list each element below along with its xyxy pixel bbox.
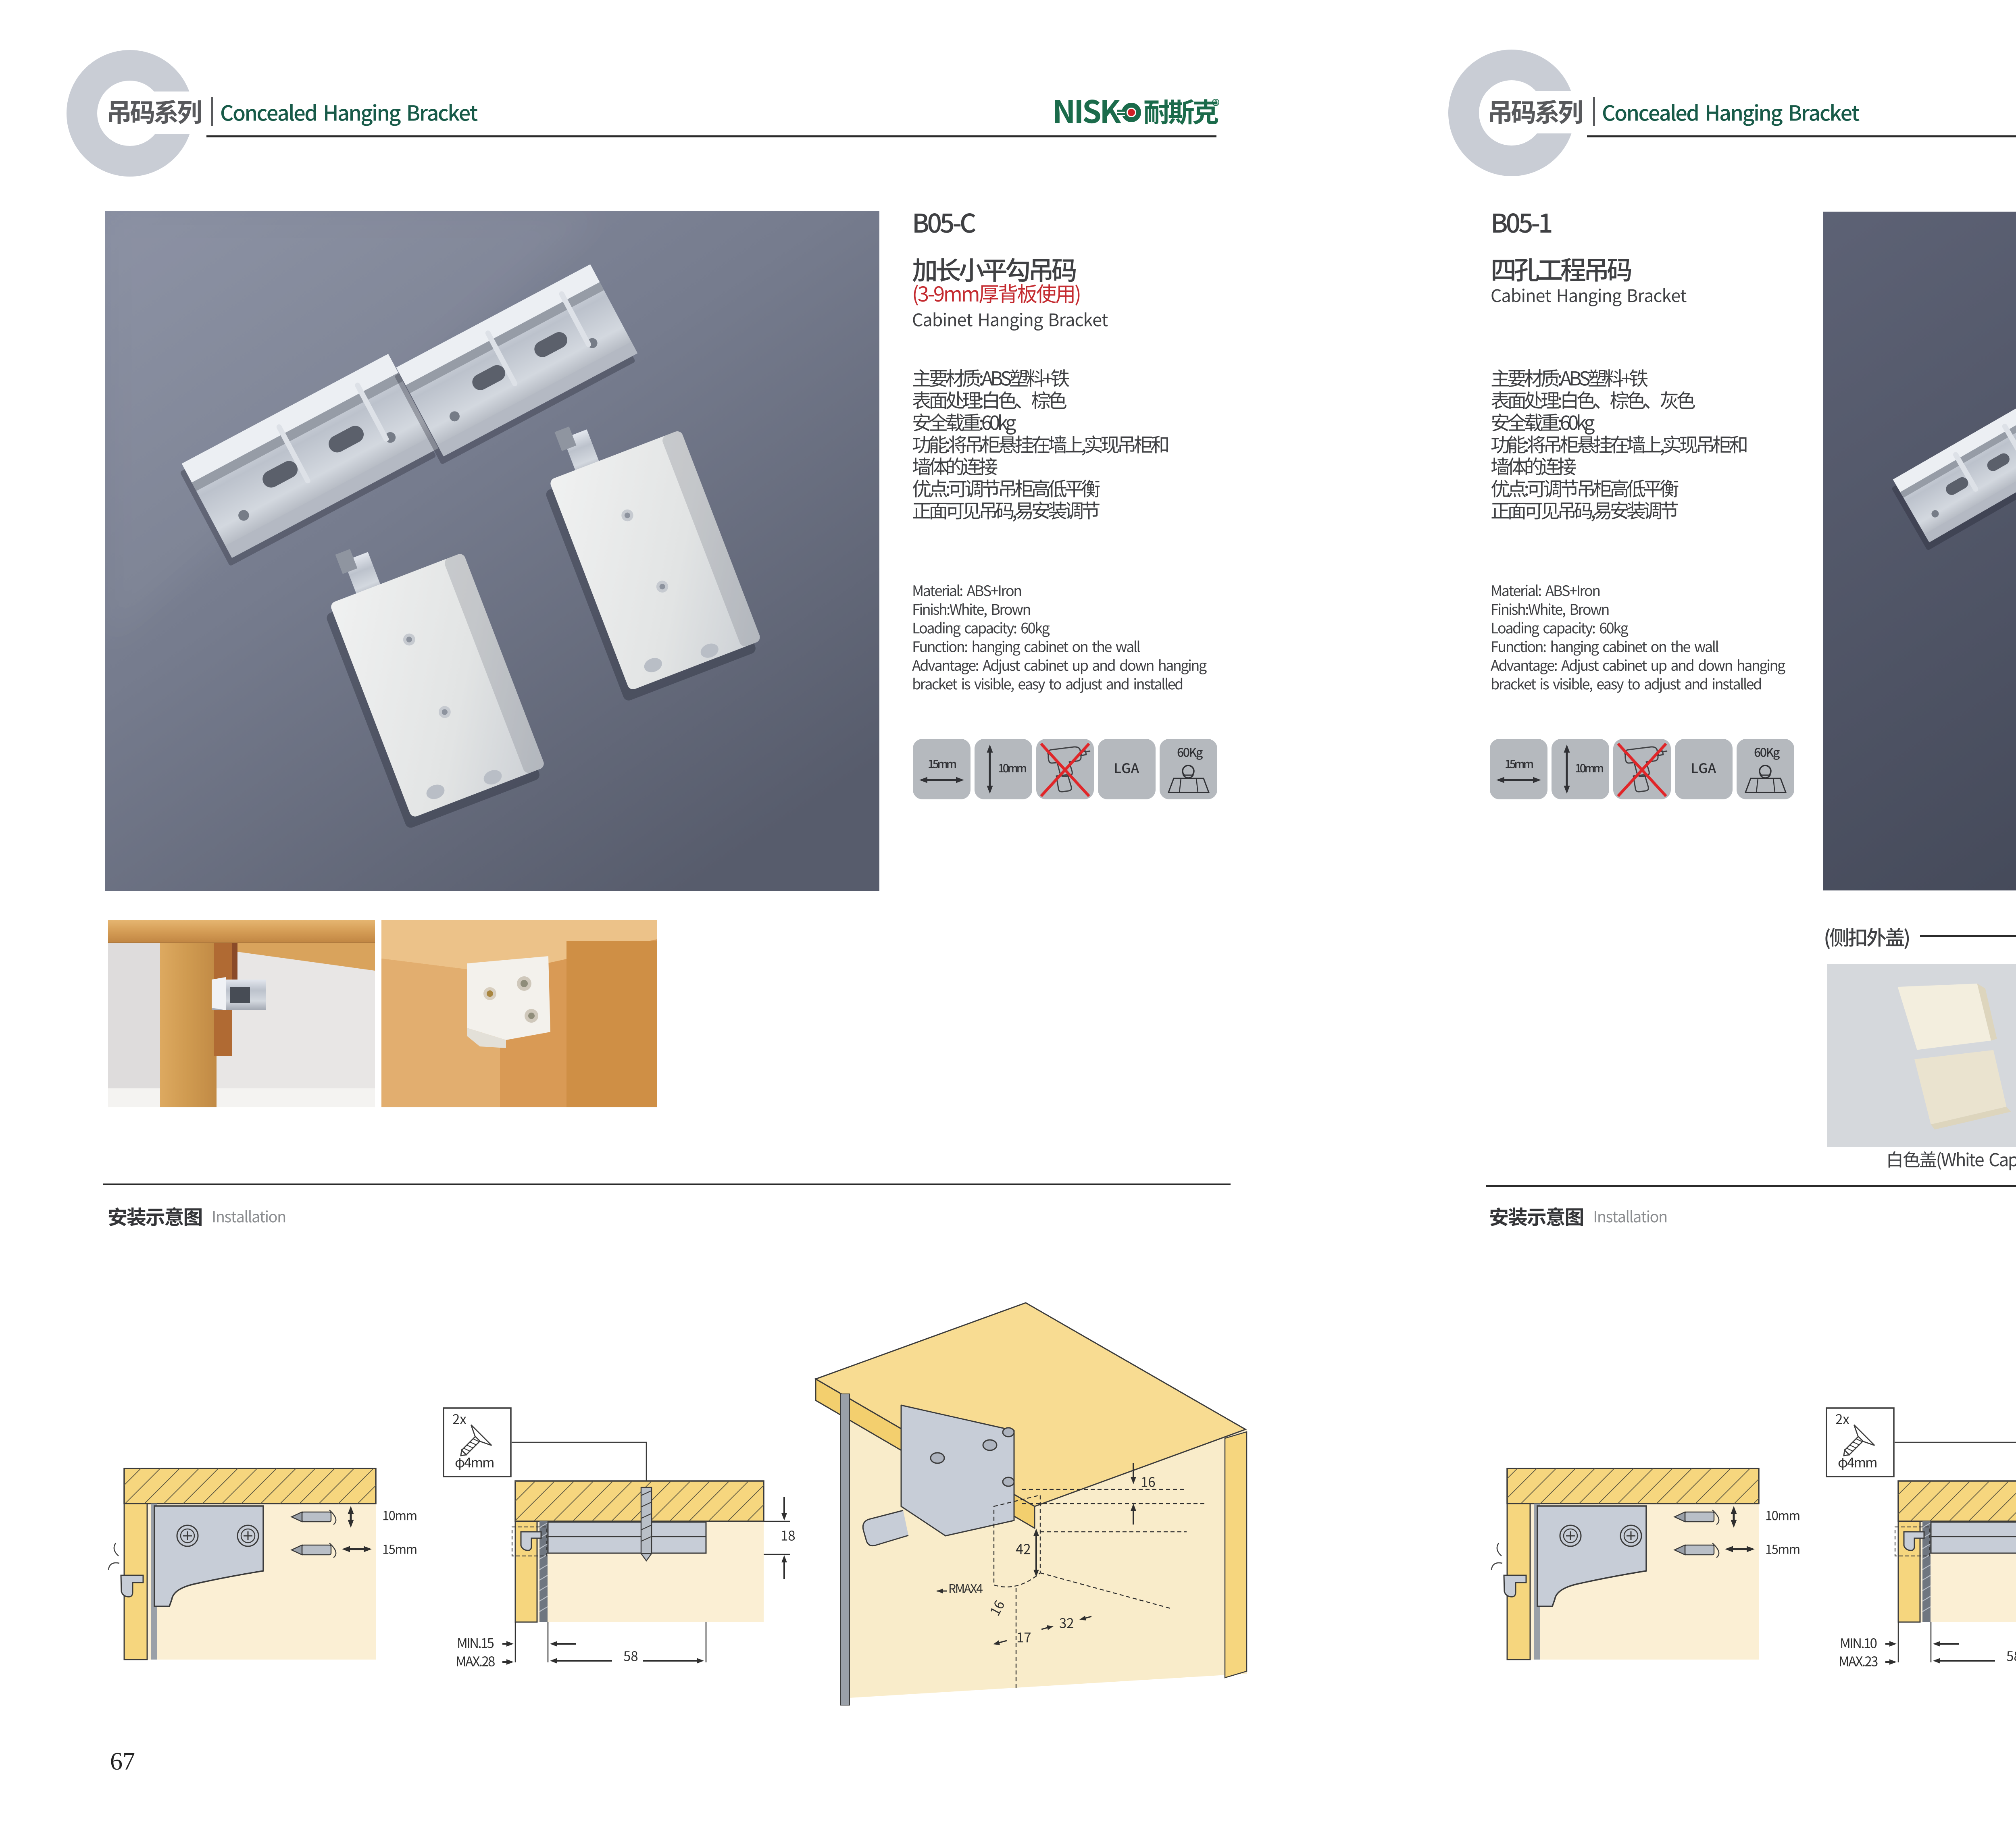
svg-text:67: 67 [110, 1748, 135, 1775]
